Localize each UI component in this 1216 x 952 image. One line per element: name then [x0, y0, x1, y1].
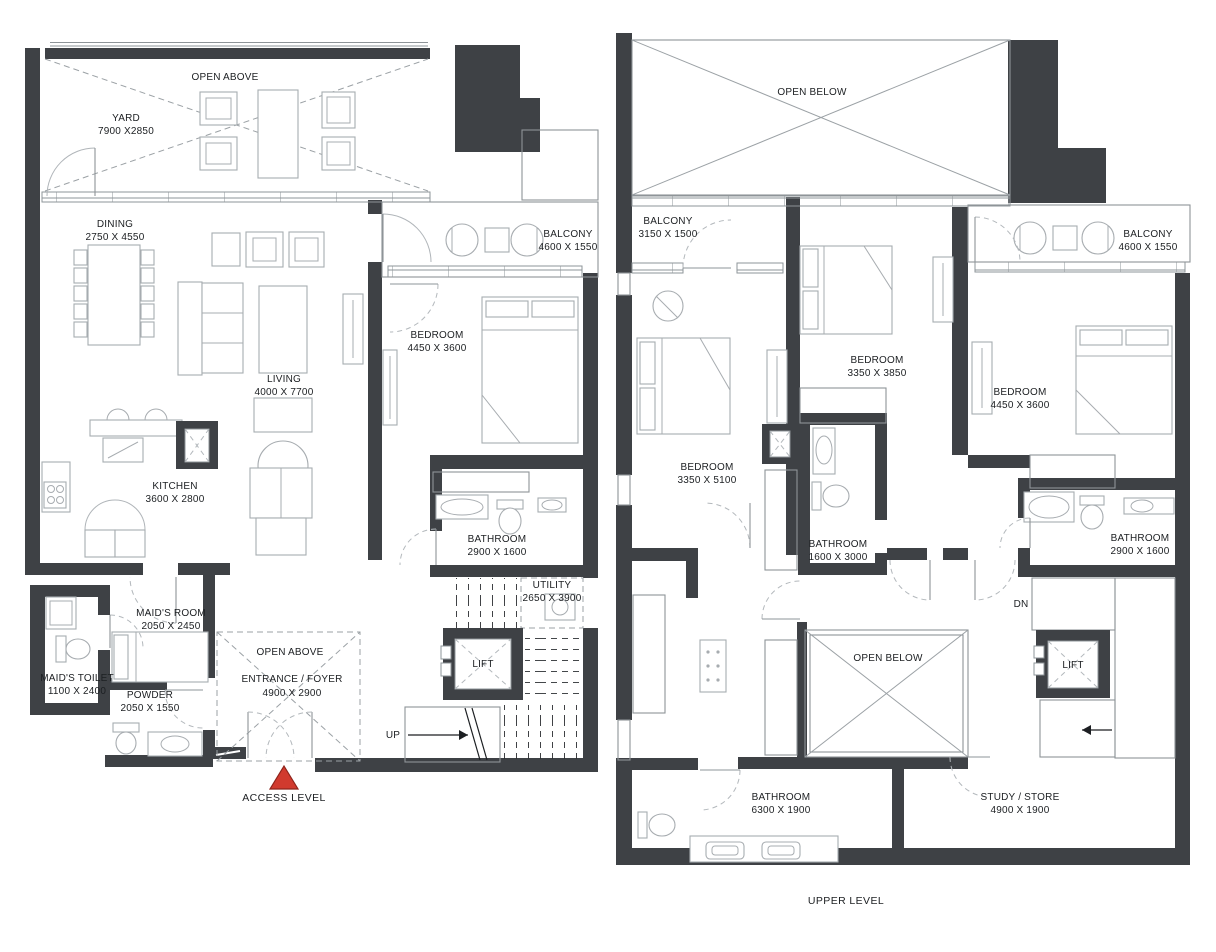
label-balcony-right-dims: 4600 X 1550 — [1119, 242, 1178, 253]
caption-access-level: ACCESS LEVEL — [242, 792, 326, 804]
label-lift: LIFT — [472, 659, 493, 670]
label-yard: YARD — [112, 113, 140, 124]
label-bedroom-dims: 4450 X 3600 — [408, 343, 467, 354]
dining-furniture — [74, 245, 154, 345]
balcony-furniture — [383, 214, 543, 262]
label-powder: POWDER — [127, 690, 173, 701]
label-upper-lift: LIFT — [1062, 660, 1083, 671]
label-utility-dims: 2650 X 3900 — [523, 593, 582, 604]
label-bathroom-bottom: BATHROOM — [752, 792, 811, 803]
label-bedroom-right: BEDROOM — [993, 387, 1046, 398]
label-maids-room: MAID'S ROOM — [136, 608, 206, 619]
label-dining-dims: 2750 X 4550 — [86, 232, 145, 243]
label-bedroom-mid: BEDROOM — [850, 355, 903, 366]
label-study-dims: 4900 X 1900 — [991, 805, 1050, 816]
label-living: LIVING — [267, 374, 301, 385]
label-dining: DINING — [97, 219, 133, 230]
upper-balcony-right-furniture — [975, 217, 1114, 262]
label-open-below-top: OPEN BELOW — [777, 87, 847, 98]
label-balcony-dims: 4600 X 1550 — [539, 242, 598, 253]
label-bathroom-dims: 2900 X 1600 — [468, 547, 527, 558]
label-dn: DN — [1014, 599, 1029, 610]
open-below-top — [632, 40, 1010, 195]
label-balcony: BALCONY — [543, 229, 592, 240]
label-entrance: ENTRANCE / FOYER — [242, 674, 343, 685]
label-balcony-left: BALCONY — [643, 216, 692, 227]
label-utility: UTILITY — [533, 580, 572, 591]
access-level-marker-icon — [270, 766, 298, 789]
label-open-above-yard: OPEN ABOVE — [191, 72, 258, 83]
access-level-plan: OPEN ABOVE YARD 7900 X2850 DINING 2750 X… — [25, 43, 598, 805]
label-up: UP — [386, 730, 400, 741]
label-kitchen: KITCHEN — [152, 481, 197, 492]
duct-shaft — [176, 421, 218, 469]
label-bedroom-left: BEDROOM — [680, 462, 733, 473]
upper-walls — [616, 33, 1190, 865]
label-entrance-dims: 4900 X 2900 — [263, 688, 322, 699]
label-bathroom: BATHROOM — [468, 534, 527, 545]
label-bedroom-left-dims: 3350 X 5100 — [678, 475, 737, 486]
label-yard-dims: 7900 X2850 — [98, 126, 154, 137]
label-bathroom-mid: BATHROOM — [809, 539, 868, 550]
label-maids-room-dims: 2050 X 2450 — [142, 621, 201, 632]
label-bathroom-bottom-dims: 6300 X 1900 — [752, 805, 811, 816]
caption-upper-level: UPPER LEVEL — [808, 895, 884, 907]
label-bathroom-right: BATHROOM — [1111, 533, 1170, 544]
label-bathroom-mid-dims: 1600 X 3000 — [809, 552, 868, 563]
label-powder-dims: 2050 X 1550 — [121, 703, 180, 714]
label-balcony-left-dims: 3150 X 1500 — [639, 229, 698, 240]
label-kitchen-dims: 3600 X 2800 — [146, 494, 205, 505]
label-entrance-open: OPEN ABOVE — [256, 647, 323, 658]
label-maids-toilet: MAID'S TOILET — [40, 673, 114, 684]
label-bedroom-mid-dims: 3350 X 3850 — [848, 368, 907, 379]
label-living-dims: 4000 X 7700 — [255, 387, 314, 398]
label-maids-toilet-dims: 1100 X 2400 — [48, 686, 106, 697]
upper-level-plan: OPEN BELOW BALCONY 3150 X 1500 BEDROOM 3… — [616, 33, 1190, 907]
open-below-mid — [805, 630, 968, 757]
label-open-below-mid: OPEN BELOW — [853, 653, 923, 664]
label-bedroom-right-dims: 4450 X 3600 — [991, 400, 1050, 411]
label-bedroom: BEDROOM — [410, 330, 463, 341]
label-balcony-right: BALCONY — [1123, 229, 1172, 240]
floorplan-canvas: OPEN ABOVE YARD 7900 X2850 DINING 2750 X… — [0, 0, 1216, 952]
floorplan-svg: OPEN ABOVE YARD 7900 X2850 DINING 2750 X… — [0, 0, 1216, 952]
label-bathroom-right-dims: 2900 X 1600 — [1111, 546, 1170, 557]
label-study: STUDY / STORE — [981, 792, 1060, 803]
